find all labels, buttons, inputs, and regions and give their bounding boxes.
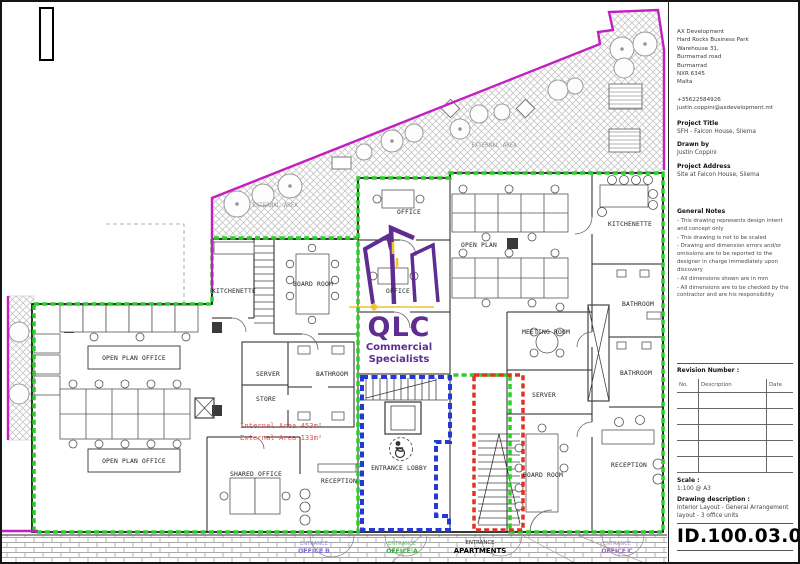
revision-row	[677, 424, 793, 441]
revision-table-divider	[698, 379, 699, 472]
general-notes: - This drawing represents design intent …	[677, 218, 793, 301]
room-server-right: SERVER	[532, 392, 556, 399]
room-kitchenette-left: KITCHENETTE	[212, 288, 256, 295]
entrance-office-a-line1: ENTRANCE	[388, 541, 416, 547]
internal-area-text: Internal Area 453m²	[240, 421, 322, 430]
project-address-value: Site at Falcon House, Sliema	[677, 172, 759, 178]
entrance-apartments-line1: ENTRANCE	[465, 540, 495, 546]
general-note-4: - All dimensions shown are in mm	[677, 276, 793, 284]
room-bathroom-left: BATHROOM	[316, 371, 348, 378]
company-address-2: Warehouse 31,	[677, 45, 749, 53]
id-rule-top	[677, 523, 793, 524]
project-title-value: SFH - Falcon House, Sliema	[677, 129, 756, 135]
room-meeting-room: MEETING ROOM	[522, 329, 570, 336]
title-block: AX Development Hard Rocks Business Park …	[668, 2, 800, 562]
general-notes-label: General Notes	[677, 208, 725, 215]
revision-row	[677, 440, 793, 457]
entrance-office-c-line1: ENTRANCE	[603, 541, 631, 547]
revision-row	[677, 408, 793, 425]
room-server-left: SERVER	[256, 371, 280, 378]
company-address-5: NXR 6345	[677, 70, 749, 78]
drawing-sheet: QLC Commercial Specialists OPEN PLAN OFF…	[0, 0, 800, 564]
project-address-label: Project Address	[677, 163, 731, 170]
revision-table-divider	[766, 379, 767, 472]
drawn-by-label: Drawn by	[677, 141, 709, 148]
pavement	[2, 535, 667, 564]
general-note-1: - This drawing represents design intent …	[677, 218, 793, 234]
revision-row	[677, 392, 793, 409]
revision-label: Revision Number :	[677, 367, 739, 374]
revision-col-date: Date	[769, 382, 782, 388]
revision-col-no: No.	[679, 382, 688, 388]
room-bathroom-mid-right: BATHROOM	[620, 370, 652, 377]
general-note-5: - All dimensions are to be checked by th…	[677, 285, 793, 301]
external-area-label-right: EXTERNAL AREA	[471, 143, 517, 149]
room-open-plan-office-2: OPEN PLAN OFFICE	[102, 458, 166, 465]
floor-plan: QLC Commercial Specialists OPEN PLAN OFF…	[2, 2, 670, 564]
room-board-room-right: BOARD ROOM	[523, 472, 563, 479]
company-email: justin.coppini@axdevelopment.mt	[677, 104, 773, 112]
room-store: STORE	[256, 396, 276, 403]
entrance-office-b-line2: OFFICE B	[298, 548, 330, 555]
site-marker-bar	[40, 8, 53, 60]
project-title-label: Project Title	[677, 120, 718, 127]
general-note-3: - Drawing and dimension errors and/or om…	[677, 243, 793, 274]
company-phone: +35622584926	[677, 96, 773, 104]
logo-tagline-2: Specialists	[369, 354, 430, 365]
revision-rule	[677, 363, 793, 364]
scale-value: 1:100 @ A3	[677, 486, 711, 492]
general-note-2: - This drawing is not to be scaled	[677, 235, 793, 243]
external-area-text: External Area 133m²	[240, 433, 322, 442]
company-address-1: Hard Rocks Business Park	[677, 36, 749, 44]
room-open-plan-right: OPEN PLAN	[461, 242, 497, 249]
revision-row	[677, 456, 793, 473]
company-address-6: Malta	[677, 78, 749, 86]
revision-header: No. Description Date	[677, 379, 793, 393]
company-address-3: Burmarrad road	[677, 53, 749, 61]
company-contact: +35622584926 justin.coppini@axdevelopmen…	[677, 96, 773, 113]
entrance-office-b-line1: ENTRANCE	[300, 541, 328, 547]
drawn-by-value: Justin Coppini	[677, 150, 717, 156]
entrance-office-c-line2: OFFICE C	[601, 548, 633, 555]
entrance-office-a-line2: OFFICE A	[386, 548, 418, 555]
room-reception-right: RECEPTION	[611, 462, 647, 469]
logo-acronym: QLC	[368, 312, 431, 343]
room-office-upper: OFFICE	[397, 209, 421, 216]
room-bathroom-top-right: BATHROOM	[622, 301, 654, 308]
revision-table: No. Description Date	[677, 379, 793, 472]
logo-tagline-1: Commercial	[366, 342, 432, 353]
drawing-id: ID.100.03.00	[677, 526, 800, 547]
room-board-room-left: BOARD ROOM	[293, 281, 333, 288]
scale-label: Scale :	[677, 477, 700, 484]
company-name: AX Development	[677, 28, 749, 36]
revision-col-description: Description	[701, 382, 732, 388]
drawing-description-value: Interior Layout - General Arrangement la…	[677, 505, 795, 521]
company-address-4: Burmarrad	[677, 62, 749, 70]
room-kitchenette-right: KITCHENETTE	[608, 221, 652, 228]
room-shared-office: SHARED OFFICE	[230, 471, 282, 478]
drawing-description-label: Drawing description :	[677, 496, 750, 503]
entrance-apartments-line2: APARTMENTS	[454, 547, 507, 555]
room-entrance-lobby: ENTRANCE LOBBY	[371, 465, 427, 472]
external-area-label-left: EXTERNAL AREA	[252, 203, 298, 209]
room-reception-left: RECEPTION	[321, 478, 357, 485]
room-open-plan-office-1: OPEN PLAN OFFICE	[102, 355, 166, 362]
setback-dashed-line	[106, 224, 184, 302]
company-block: AX Development Hard Rocks Business Park …	[677, 28, 749, 87]
room-office-lower: OFFICE	[386, 288, 410, 295]
id-rule-bottom	[677, 550, 793, 551]
